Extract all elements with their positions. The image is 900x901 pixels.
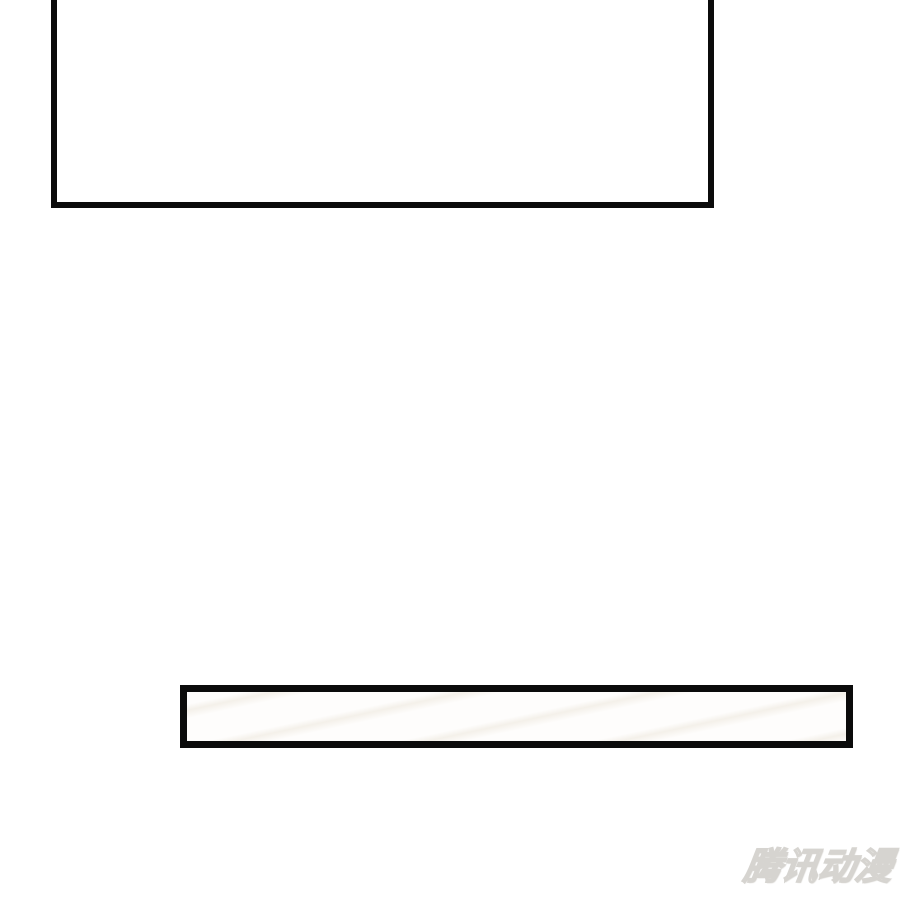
tencent-comics-watermark: 腾讯动漫 [741, 845, 900, 891]
comic-panel-top [51, 0, 714, 208]
comic-page: 腾讯动漫 [0, 0, 900, 901]
comic-panel-strip [180, 685, 853, 748]
